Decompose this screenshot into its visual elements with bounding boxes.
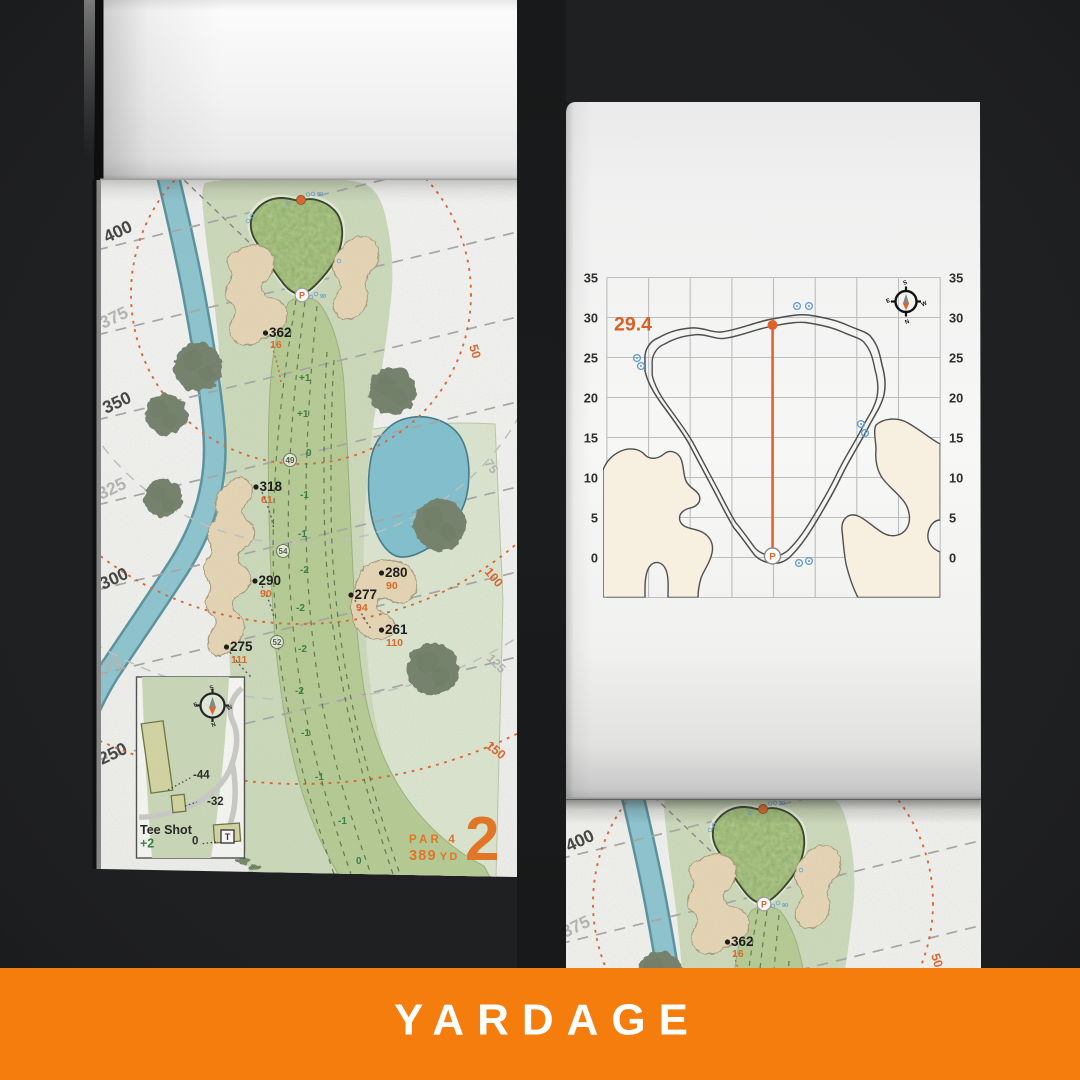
svg-text:0: 0: [949, 551, 956, 566]
svg-text:29.4: 29.4: [614, 314, 652, 336]
svg-text:35: 35: [949, 271, 963, 286]
svg-text:P: P: [769, 552, 776, 563]
svg-text:15: 15: [584, 431, 598, 446]
svg-text:15: 15: [949, 431, 963, 446]
svg-text:10: 10: [949, 471, 963, 486]
svg-text:30: 30: [584, 311, 598, 326]
svg-text:20: 20: [949, 391, 963, 406]
svg-text:10: 10: [584, 471, 598, 486]
svg-text:5: 5: [949, 511, 956, 526]
svg-text:35: 35: [584, 271, 598, 286]
svg-text:20: 20: [584, 391, 598, 406]
svg-text:30: 30: [949, 311, 963, 326]
svg-text:YARDAGE: YARDAGE: [394, 996, 701, 1045]
svg-text:25: 25: [584, 351, 598, 366]
svg-text:5: 5: [591, 511, 598, 526]
svg-text:25: 25: [949, 351, 963, 366]
svg-text:0: 0: [591, 551, 598, 566]
